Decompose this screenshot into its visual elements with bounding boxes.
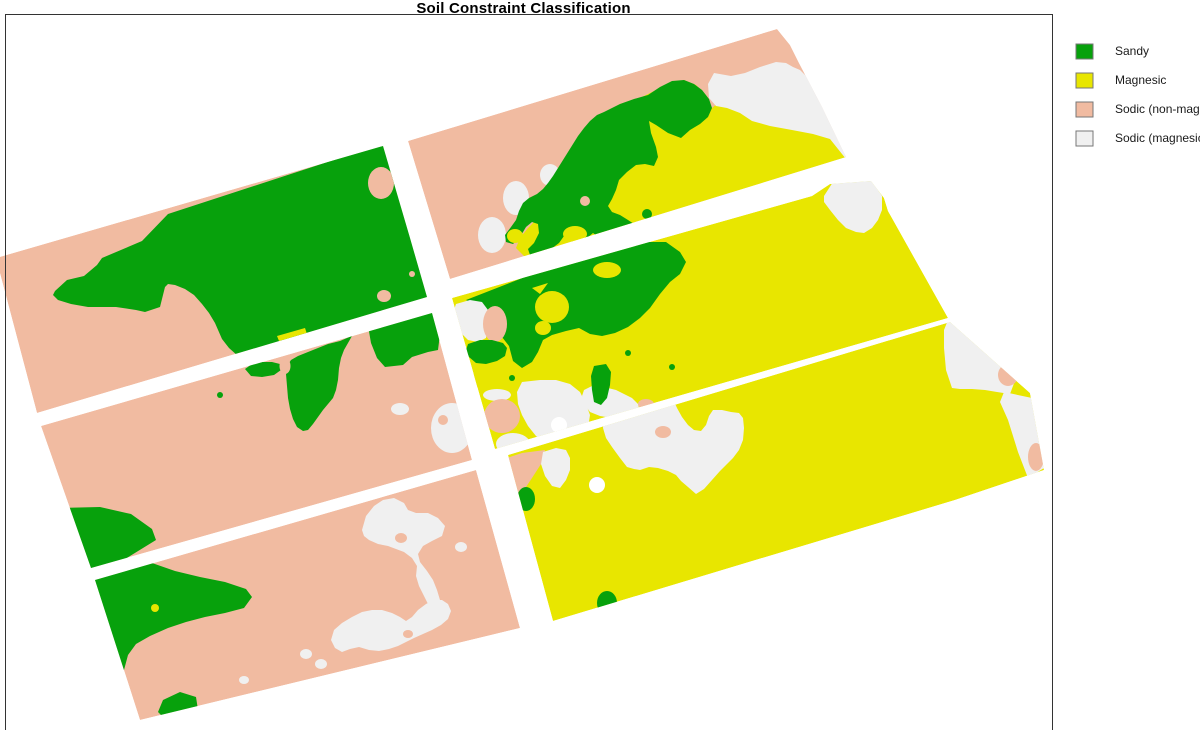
- svg-text:Sodic (magnesic): Sodic (magnesic): [1115, 131, 1200, 145]
- svg-text:Sodic (non-mag): Sodic (non-mag): [1115, 102, 1200, 116]
- svg-text:Sandy: Sandy: [1115, 44, 1149, 58]
- svg-text:Magnesic: Magnesic: [1115, 73, 1166, 87]
